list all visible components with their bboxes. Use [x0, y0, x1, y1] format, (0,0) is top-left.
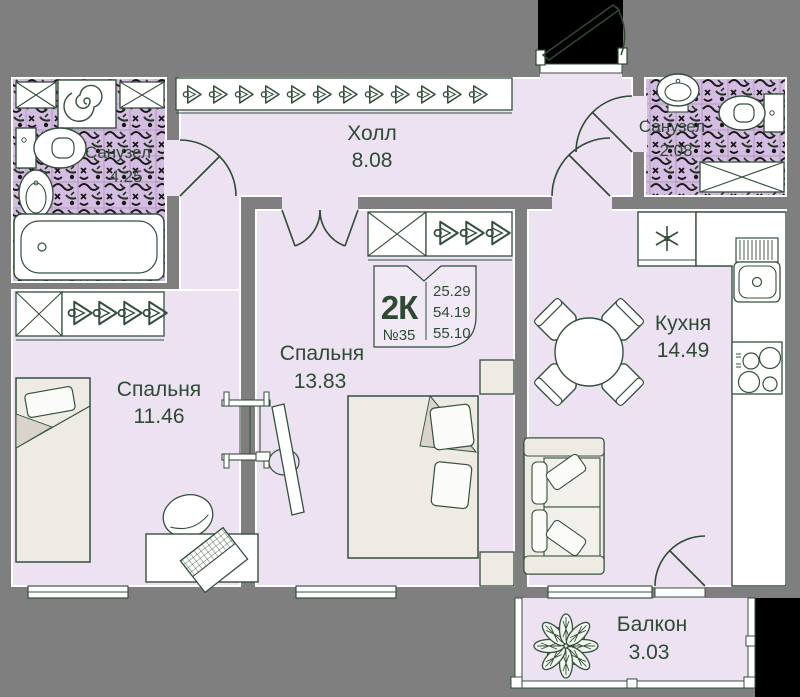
entrance-threshold [540, 64, 622, 73]
fridge-icon [638, 212, 696, 266]
stamp-unit: №35 [383, 327, 416, 344]
room-label-bathroom2: Санузел [639, 117, 705, 136]
wardrobe-icon [16, 292, 167, 340]
balcony-post [744, 677, 755, 688]
stamp-area-apartment: 54.19 [433, 304, 471, 321]
double-bed-icon [348, 396, 478, 558]
room-label-bathroom1: Санузел [85, 143, 151, 162]
room-area-bathroom2: 2.08 [659, 141, 692, 160]
room-area-bathroom1: 4.25 [109, 167, 142, 186]
void-top-entrance [538, 0, 623, 64]
stamp-type: 2К [381, 289, 419, 326]
opening-bedroom2-doors [282, 194, 358, 212]
toilet-icon [719, 94, 784, 132]
floor-plan: 2К №35 25.29 54.19 55.10 Холл 8.08 Спаль… [0, 0, 800, 697]
room-label-bedroom2: Спальня [280, 342, 364, 365]
stamp-area-total: 55.10 [433, 325, 471, 342]
bathtub-icon [14, 214, 164, 280]
balcony-post [511, 677, 522, 688]
dining-table-icon [555, 318, 623, 386]
bidet-icon [19, 170, 53, 218]
toilet-icon [16, 128, 86, 168]
room-area-balcony: 3.03 [629, 641, 670, 664]
room-area-hall: 8.08 [352, 149, 393, 172]
room-area-bedroom2: 13.83 [294, 370, 347, 393]
single-bed-icon [16, 378, 90, 562]
balcony-threshold [655, 588, 705, 597]
stamp-area-living: 25.29 [433, 283, 471, 300]
opening-bathroom1-door [164, 140, 182, 196]
kitchen-sink-icon [734, 238, 780, 302]
balcony-rail-left [515, 598, 522, 688]
shelf-x-box [700, 162, 784, 192]
window-bedroom2 [296, 586, 396, 598]
balcony-post [746, 636, 755, 646]
washing-machine-icon [58, 80, 116, 128]
nightstand-icon [480, 360, 514, 394]
shelf-x-box [120, 82, 164, 108]
nightstand-icon [480, 552, 514, 586]
sofa-icon [524, 438, 604, 574]
room-label-kitchen: Кухня [655, 312, 711, 335]
room-area-bedroom1: 11.46 [134, 405, 185, 428]
opening-kitchen-door [552, 194, 612, 212]
window-kitchen [548, 586, 652, 598]
void-bottom-right [755, 598, 800, 697]
stove-icon [732, 342, 782, 394]
room-label-hall: Холл [347, 122, 397, 145]
room-area-kitchen: 14.49 [657, 339, 710, 362]
room-label-balcony: Балкон [617, 613, 687, 636]
window-bedroom1 [28, 586, 128, 598]
balcony-post [627, 679, 637, 688]
shelf-x-box [16, 82, 56, 108]
hall-wardrobe [176, 78, 512, 113]
room-label-bedroom1: Спальня [117, 378, 201, 401]
wardrobe-icon [368, 212, 512, 260]
